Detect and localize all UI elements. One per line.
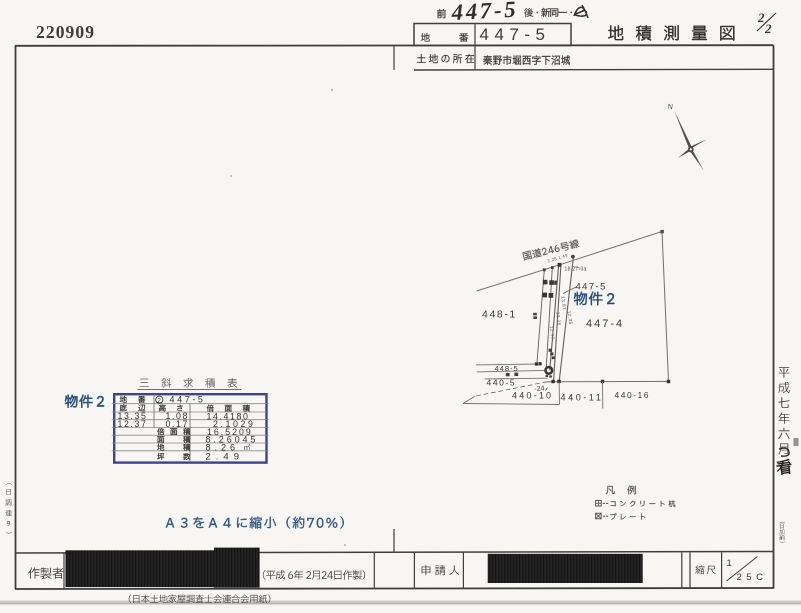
svg-text:220909: 220909	[36, 22, 95, 42]
svg-text:447-4: 447-4	[586, 318, 624, 330]
svg-text:13.87: 13.87	[560, 296, 567, 311]
svg-text:12.37: 12.37	[549, 326, 555, 340]
svg-text:25C: 25C	[737, 572, 768, 583]
svg-text:2: 2	[757, 10, 765, 25]
svg-text:1: 1	[727, 558, 732, 569]
svg-text:448-1: 448-1	[482, 309, 517, 321]
svg-text:447-5: 447-5	[170, 395, 206, 405]
svg-text:12.35: 12.35	[567, 310, 574, 325]
svg-text:440-11: 440-11	[561, 393, 604, 403]
svg-text:2: 2	[157, 397, 161, 404]
svg-text:2.28 1.49: 2.28 1.49	[547, 252, 569, 263]
svg-text:440-16: 440-16	[615, 390, 650, 400]
svg-text:N: N	[667, 104, 673, 112]
svg-text:2.49: 2.49	[206, 452, 245, 463]
svg-text:440-10: 440-10	[512, 390, 553, 400]
svg-text:447-5: 447-5	[450, 0, 519, 25]
svg-text:0.17: 0.17	[166, 419, 190, 429]
svg-text:13.35: 13.35	[555, 312, 561, 326]
svg-text:12.37: 12.37	[118, 419, 148, 429]
svg-text:448-5: 448-5	[495, 364, 519, 373]
svg-text:447-5: 447-5	[576, 282, 607, 293]
svg-text:447-5: 447-5	[480, 25, 551, 44]
svg-text:440-5: 440-5	[487, 378, 517, 388]
